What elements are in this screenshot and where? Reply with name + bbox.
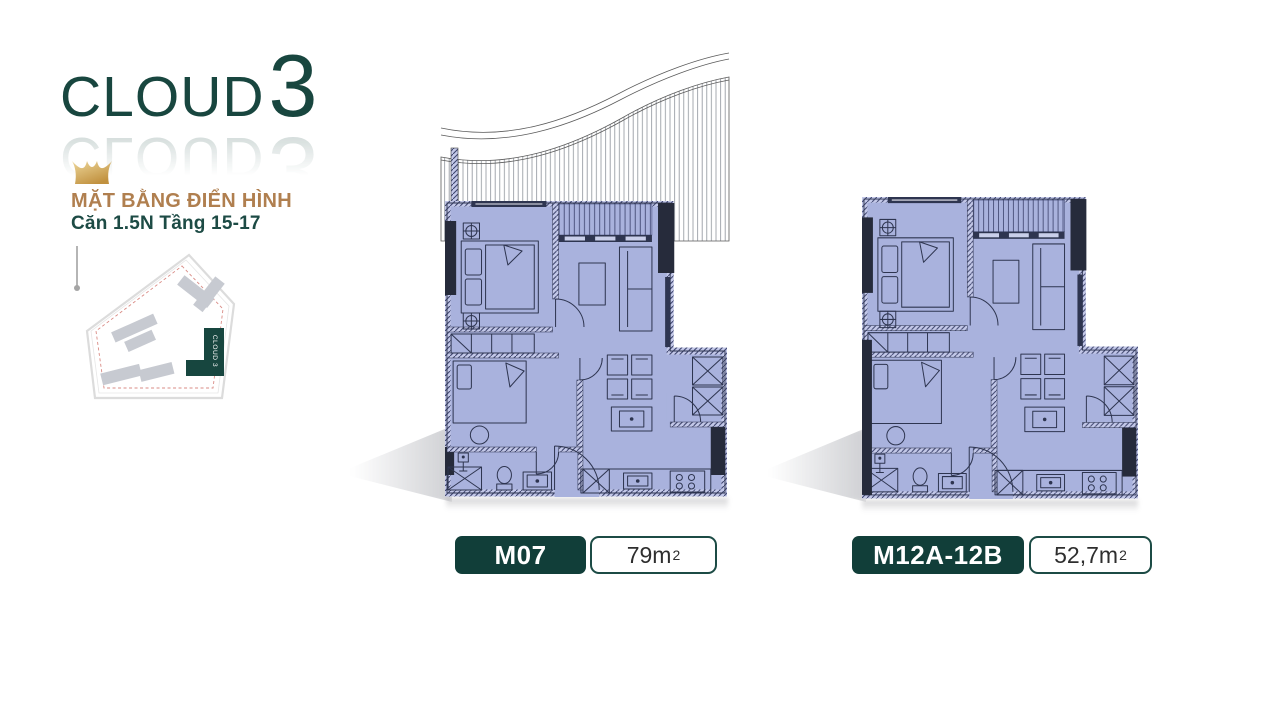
site-plan-label: CLOUD 3: [211, 335, 218, 367]
shadow: [338, 426, 452, 502]
logo-number: 3: [269, 46, 318, 127]
logo-wordmark: CLOUD 3: [60, 46, 317, 127]
page-title: MẶT BẰNG ĐIỂN HÌNH: [71, 190, 292, 213]
shadow: [446, 498, 728, 510]
unit-area-badge-m07: 79m2: [590, 536, 717, 574]
crown-icon: [70, 158, 114, 186]
wall-column: [862, 340, 872, 495]
unit-area: 52,7m: [1054, 542, 1118, 569]
unit-code: M07: [494, 540, 546, 571]
floor-plan-m07: [445, 201, 727, 497]
site-plan: CLOUD 3: [82, 252, 247, 410]
unit-code: M12A-12B: [873, 540, 1003, 571]
unit-code-badge-m12a-12b: M12A-12B: [852, 536, 1024, 574]
page-subtitle: Căn 1.5N Tầng 15-17: [71, 213, 261, 235]
shadow: [862, 500, 1138, 512]
connector-line: [76, 246, 78, 286]
unit-area-badge-m12a-12b: 52,7m2: [1029, 536, 1152, 574]
unit-area-sup: 2: [1119, 547, 1127, 563]
unit-code-badge-m07: M07: [455, 536, 586, 574]
floor-plan-m12a-12b: [862, 197, 1138, 499]
logo-text: CLOUD: [60, 71, 265, 123]
shadow: [756, 428, 866, 502]
unit-area: 79m: [627, 542, 672, 569]
poster: CLOUD 3 CLOUD 3 MẶT BẰNG ĐIỂN HÌNH Căn 1…: [0, 0, 1279, 719]
unit-area-sup: 2: [672, 547, 680, 563]
